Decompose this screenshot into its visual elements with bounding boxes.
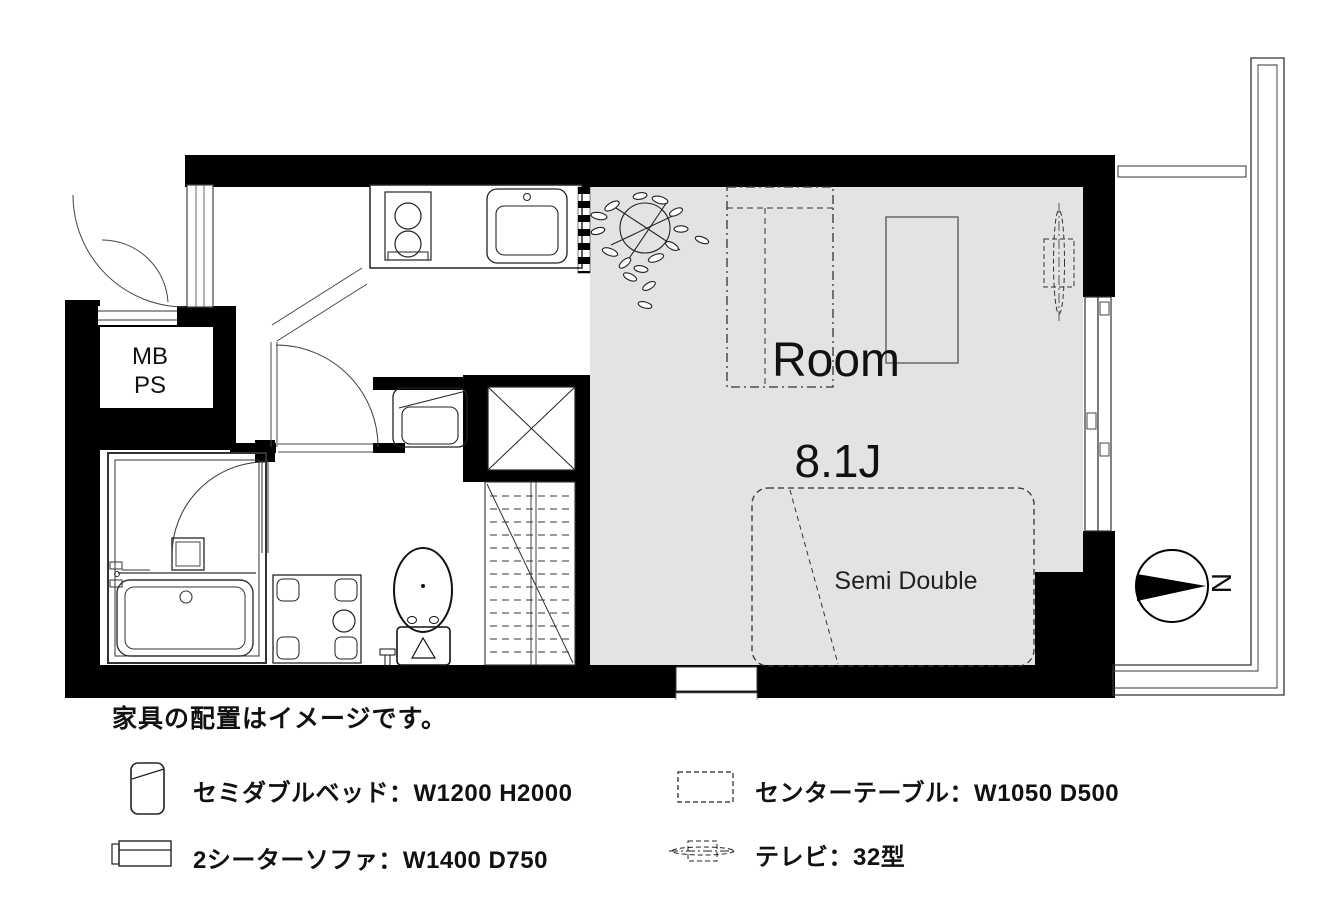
floor-plan-page: MB PS bbox=[0, 0, 1330, 918]
bed-legend-icon bbox=[129, 761, 169, 817]
legend-item-tv: テレビ：32型 bbox=[668, 838, 738, 864]
washroom-door bbox=[271, 268, 378, 452]
legend-tv-label: テレビ：32型 bbox=[755, 837, 905, 872]
window-right bbox=[1085, 297, 1111, 531]
balcony-partition bbox=[1118, 166, 1246, 177]
bottom-window bbox=[676, 667, 757, 700]
bed-size-label: Semi Double bbox=[834, 567, 977, 595]
legend-table-label: センターテーブル：W1050 D500 bbox=[755, 773, 1119, 808]
sofa-legend-icon bbox=[110, 838, 176, 868]
compass-n-label: N bbox=[1206, 573, 1237, 593]
mb-label: MB bbox=[132, 343, 168, 370]
x-closet bbox=[488, 387, 575, 470]
legend-item-table: センターテーブル：W1050 D500 bbox=[676, 770, 738, 806]
shelf-closet bbox=[485, 482, 575, 665]
bath-control-panel bbox=[172, 538, 204, 570]
room-size-label: 8.1J bbox=[795, 435, 882, 487]
entrance-door bbox=[73, 185, 213, 307]
kitchen-counter bbox=[370, 185, 582, 268]
washing-machine-pan bbox=[273, 575, 361, 663]
compass: N bbox=[1136, 550, 1237, 622]
bathtub-icon bbox=[117, 580, 253, 656]
table-legend-icon bbox=[676, 770, 738, 806]
floor-plan-drawing: MB PS bbox=[0, 0, 1330, 700]
room-floor bbox=[590, 187, 1083, 667]
kitchen-partition bbox=[578, 187, 590, 273]
shower-fixture-icon bbox=[110, 562, 150, 587]
ps-label: PS bbox=[134, 372, 166, 399]
legend-item-bed: セミダブルベッド：W1200 H2000 bbox=[129, 761, 169, 817]
legend-sofa-label: 2シーターソファ：W1400 D750 bbox=[193, 840, 548, 875]
toilet-icon bbox=[380, 548, 452, 666]
room-name-label: Room bbox=[772, 334, 900, 387]
legend-item-sofa: 2シーターソファ：W1400 D750 bbox=[110, 838, 176, 868]
legend-bed-label: セミダブルベッド：W1200 H2000 bbox=[193, 773, 572, 808]
tv-legend-icon bbox=[668, 838, 738, 864]
caption: 家具の配置はイメージです。 bbox=[112, 699, 447, 735]
washbasin-icon bbox=[393, 388, 467, 447]
bathroom bbox=[108, 453, 268, 663]
